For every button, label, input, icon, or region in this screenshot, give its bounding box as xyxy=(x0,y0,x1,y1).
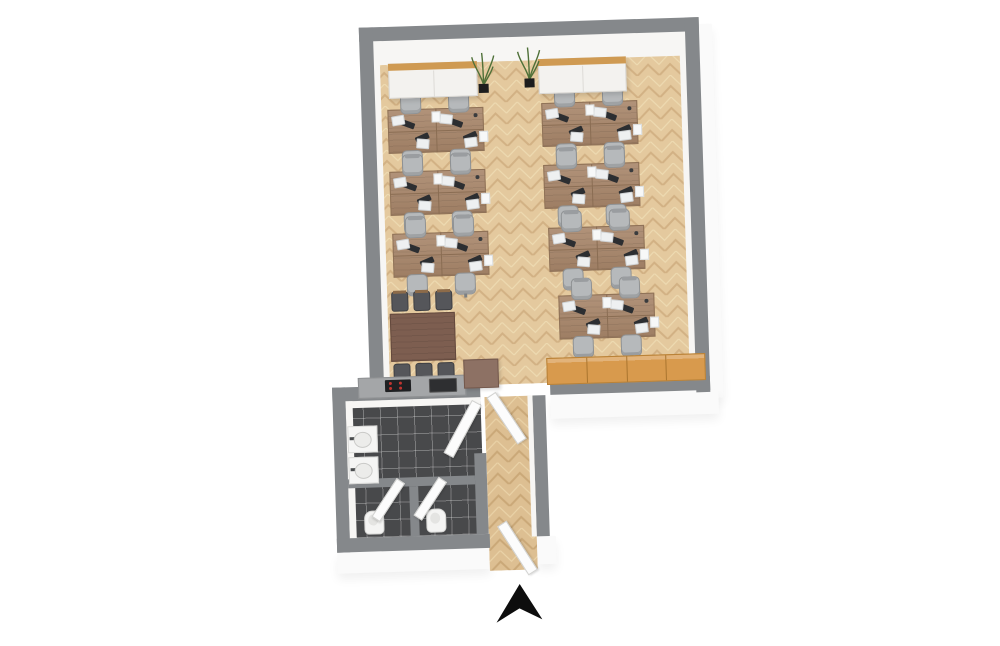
office-chair xyxy=(402,154,424,177)
laptop xyxy=(439,113,453,124)
office-chair xyxy=(561,210,583,233)
floorplan-scene xyxy=(0,0,1000,646)
paper-sheet xyxy=(587,166,596,177)
washbasin-1 xyxy=(347,425,378,453)
laptop xyxy=(587,324,601,335)
laptop xyxy=(600,231,614,242)
laptop xyxy=(444,237,458,248)
laptop xyxy=(577,256,591,267)
office-chair xyxy=(571,278,593,301)
laptop xyxy=(416,138,430,149)
meeting-chair xyxy=(391,291,409,312)
desk-lamp xyxy=(634,231,638,235)
burner xyxy=(389,382,392,385)
laptop xyxy=(418,200,432,211)
office-chair xyxy=(609,208,631,231)
floorplan-canvas xyxy=(0,0,1000,646)
laptop xyxy=(610,299,624,310)
laptop xyxy=(595,169,609,180)
locker-cabinets xyxy=(546,353,706,385)
burner xyxy=(399,387,402,390)
laptop xyxy=(469,260,483,272)
burner xyxy=(389,387,392,390)
laptop xyxy=(464,136,478,148)
laptop xyxy=(635,322,649,334)
meeting-chair xyxy=(435,290,453,311)
paper-sheet xyxy=(479,131,488,142)
plant-left xyxy=(469,48,496,95)
office-chair xyxy=(556,147,578,170)
office-chair xyxy=(619,276,641,299)
paper-sheet xyxy=(635,186,644,197)
office-chair xyxy=(405,216,427,239)
fridge xyxy=(463,359,499,389)
paper-sheet xyxy=(431,111,440,122)
laptop xyxy=(625,254,639,266)
office-chair xyxy=(453,214,475,237)
office-chair xyxy=(454,272,476,295)
office-chair xyxy=(604,145,626,168)
office-chair xyxy=(621,334,643,357)
paper-sheet xyxy=(585,104,594,115)
burner xyxy=(399,382,402,385)
laptop xyxy=(570,132,584,143)
desks-L3 xyxy=(392,231,489,278)
paper-sheet xyxy=(436,235,445,246)
locker-divider xyxy=(586,358,588,383)
desks-R3 xyxy=(548,225,645,272)
paper-sheet xyxy=(640,249,649,260)
sideboard-left xyxy=(388,61,478,99)
paper-sheet xyxy=(484,255,493,266)
faucet xyxy=(351,468,356,471)
meeting-area xyxy=(389,290,455,382)
sideboard-right xyxy=(538,56,627,94)
wall-outer-face-entrance-right xyxy=(537,536,557,565)
paper-sheet xyxy=(633,124,642,135)
desks-L1 xyxy=(387,107,484,154)
paper-sheet xyxy=(481,193,490,204)
laptop xyxy=(441,175,455,186)
paper-sheet xyxy=(602,297,611,308)
entrance-direction-arrow xyxy=(495,583,542,622)
desk-lamp xyxy=(475,175,479,179)
desk-lamp xyxy=(478,237,482,241)
cooktop xyxy=(385,379,411,392)
desks-R1 xyxy=(541,100,638,147)
laptop xyxy=(593,107,607,118)
desks-R2 xyxy=(543,162,640,209)
toilet-2 xyxy=(426,508,447,533)
restroom-corridor-wall xyxy=(474,453,489,534)
meeting-chair xyxy=(413,291,431,312)
meeting-table xyxy=(390,312,456,362)
locker-divider xyxy=(626,357,628,382)
locker-divider xyxy=(665,355,667,380)
furniture-layer xyxy=(0,0,990,16)
office-chair xyxy=(573,336,595,359)
paper-sheet xyxy=(592,229,601,240)
laptop xyxy=(421,262,435,273)
kitchen-sink xyxy=(429,378,457,393)
faucet xyxy=(350,437,355,440)
desks-L2 xyxy=(389,169,486,216)
laptop xyxy=(572,193,586,204)
laptop xyxy=(618,130,632,142)
plant-right xyxy=(515,43,542,90)
paper-sheet xyxy=(433,173,442,184)
paper-sheet xyxy=(650,316,659,327)
office-chair xyxy=(450,152,472,175)
laptop xyxy=(620,192,634,204)
desks-R4 xyxy=(558,293,655,340)
laptop xyxy=(466,198,480,210)
washbasin-2 xyxy=(348,456,379,484)
